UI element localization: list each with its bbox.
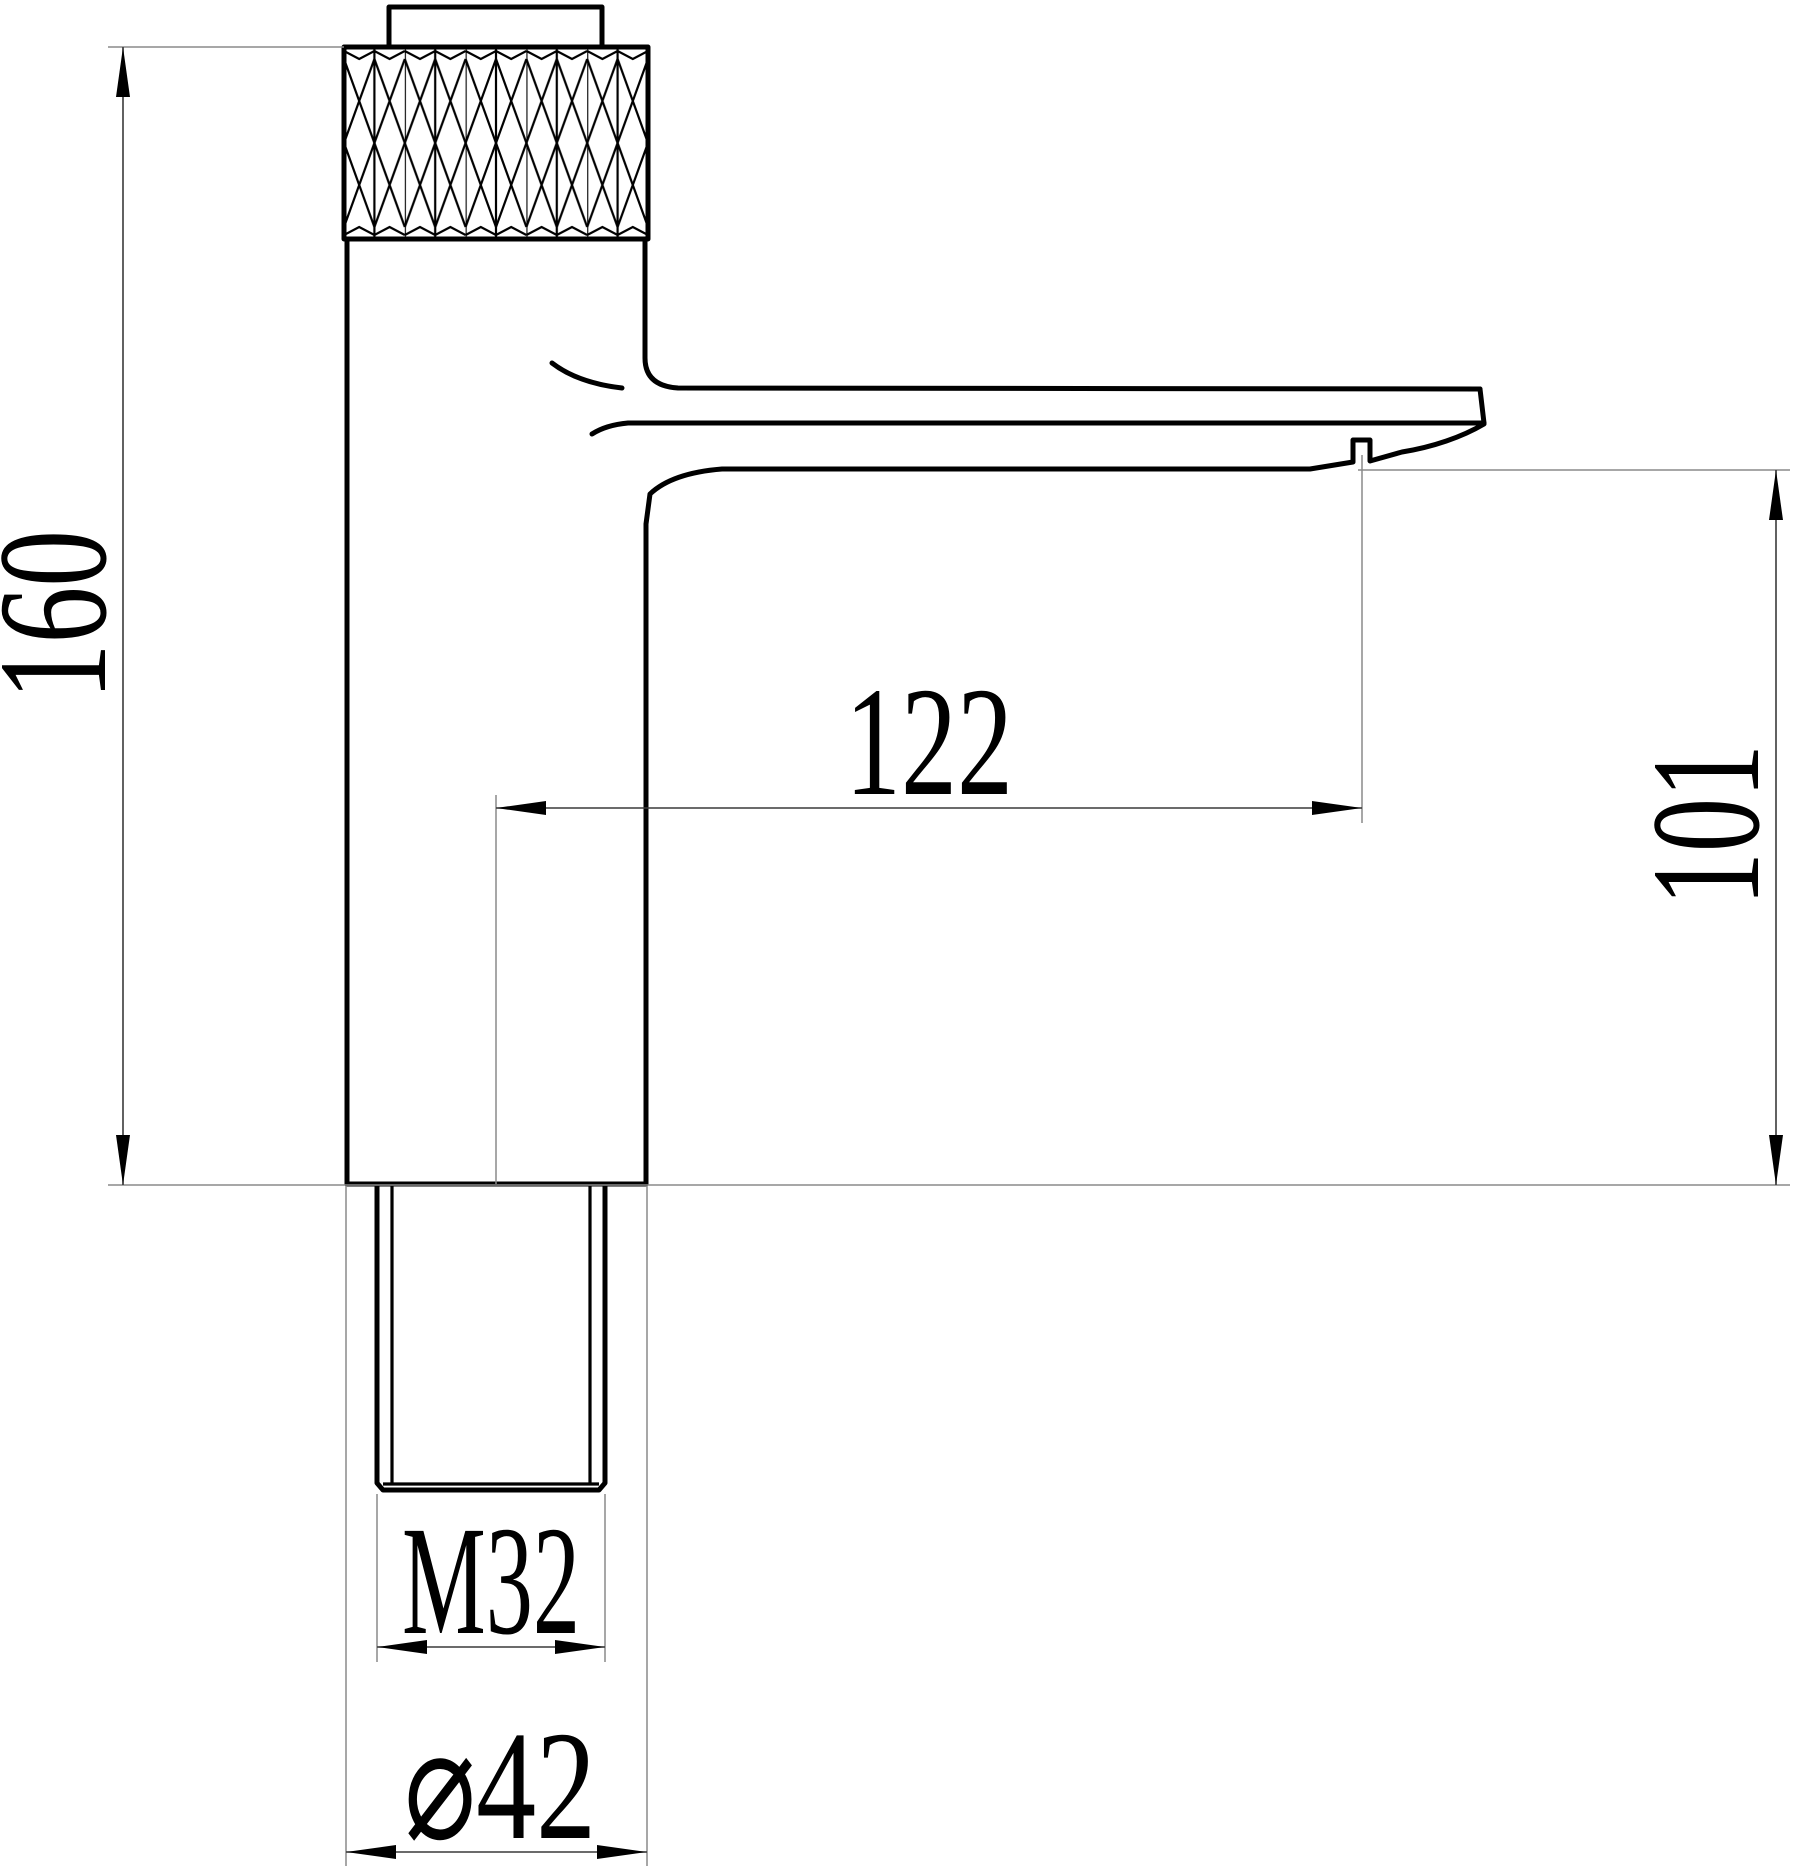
knurl-band [344,47,648,239]
arrow-up-icon [116,47,130,97]
dimension-phi42: ⌀42 [346,1699,647,1871]
arrow-right-icon [597,1845,647,1859]
spout-top-flick [552,363,622,388]
dim-label-m32: M32 [402,1494,580,1667]
dimension-m32: M32 [377,1494,605,1667]
dimension-160: 160 [0,47,139,1185]
dim-label-160: 160 [0,530,139,700]
arrow-down-icon [1769,1135,1783,1185]
arrow-down-icon [116,1135,130,1185]
drawing-canvas: 160 122 101 M32 ⌀42 [0,0,1794,1871]
arrow-right-icon [1312,801,1362,815]
spout-tip-edge [1480,389,1484,423]
arrow-up-icon [1769,470,1783,520]
handle-top-cap [389,7,602,47]
dim-label-101: 101 [1619,744,1792,906]
spout-plate-underside [592,423,1484,434]
dimension-101: 101 [1619,470,1792,1185]
dim-label-122: 122 [845,655,1013,828]
dim-label-phi42: ⌀42 [404,1699,596,1871]
arrow-left-icon [496,801,546,815]
threaded-shank [377,1184,605,1490]
extension-lines [108,47,1790,1866]
spout-underside-and-body-lower-edge [646,424,1484,1184]
arrow-left-icon [346,1845,396,1859]
body-right-edge-upper [645,239,1480,389]
dimension-122: 122 [496,655,1362,828]
dimension-lines: 160 122 101 M32 ⌀42 [0,47,1792,1871]
